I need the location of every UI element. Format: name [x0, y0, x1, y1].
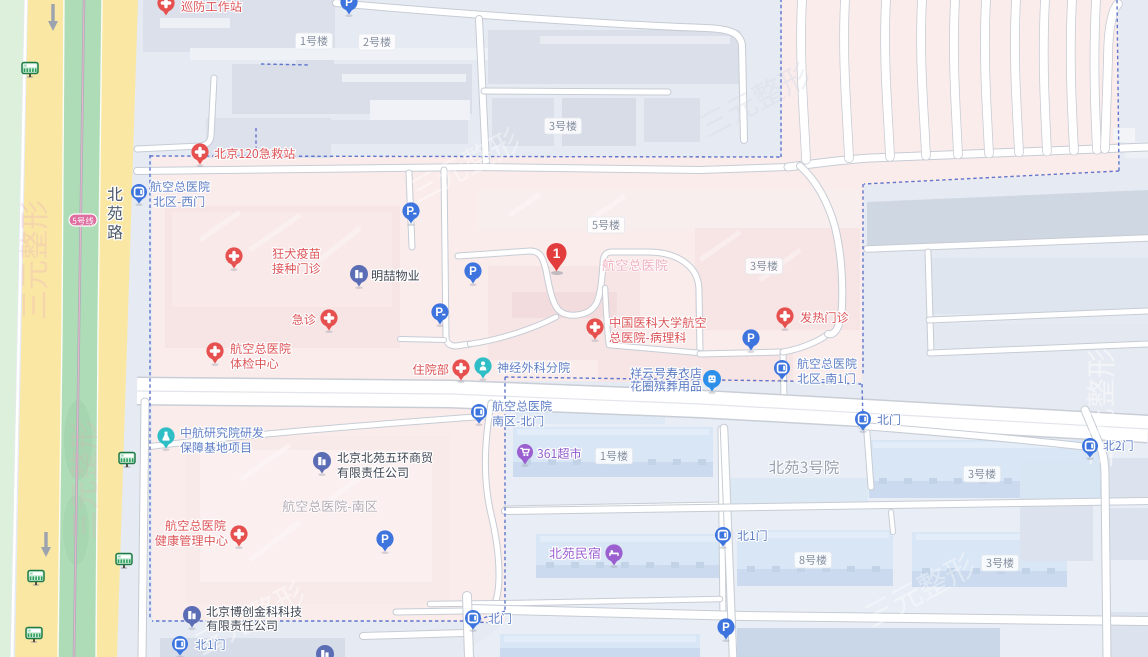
svg-text:P: P	[406, 206, 414, 218]
svg-text:1: 1	[553, 246, 561, 261]
svg-text:P: P	[345, 0, 353, 9]
svg-text:P: P	[381, 534, 389, 546]
svg-text:P: P	[722, 622, 730, 634]
svg-text:P: P	[469, 266, 477, 278]
svg-text:P: P	[747, 333, 755, 345]
svg-text:P: P	[435, 307, 443, 319]
